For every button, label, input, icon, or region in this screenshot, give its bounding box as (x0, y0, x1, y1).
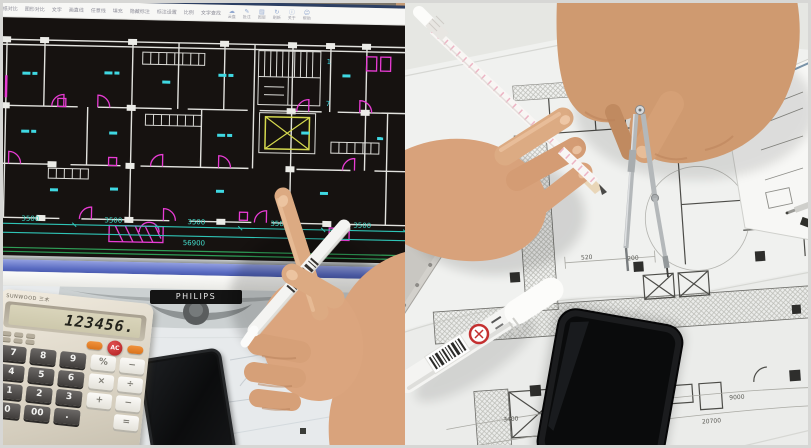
dimension-label: 3400 (503, 415, 519, 423)
calc-key-+: + (86, 392, 112, 410)
cad-toolbar-icon-label: 帮助 (303, 16, 311, 19)
calc-key-%: % (90, 354, 116, 372)
dimension-label: 200 (627, 255, 639, 263)
dimension-label: 3500 (104, 216, 122, 224)
calc-key-00: 00 (23, 405, 50, 423)
云盘-icon: ☁ (229, 9, 235, 12)
cad-menu-item: 隐藏标注 (130, 7, 150, 14)
图层-icon: ▤ (259, 10, 265, 13)
monitor: 图纸对比图形对比文字画直线任意线填充隐藏标注标注设置比例文字查找☁云盘✎批注▤图… (0, 0, 405, 294)
cad-floor-plan: 1 7 (0, 17, 405, 264)
calc-key-7: 7 (0, 345, 27, 363)
operator-keypad: %−×÷+−= (84, 354, 145, 431)
cad-toolbar-icon-label: 刷新 (273, 15, 281, 18)
cad-screen: 1 7 (0, 17, 405, 264)
calc-key-×: × (88, 373, 114, 391)
philips-logo: PHILIPS (150, 290, 242, 304)
dimension-label: 3500 (21, 215, 39, 223)
dimension-label: 20700 (702, 417, 722, 425)
calc-key-2: 2 (25, 386, 52, 404)
dimension-label: 9000 (729, 394, 745, 402)
calc-key-3: 3 (55, 389, 82, 407)
cad-menu-item: 图纸对比 (0, 5, 18, 12)
dimension-label: 3500 (270, 220, 288, 228)
calc-key-0: 0 (0, 401, 21, 419)
刷新-icon: ↻ (274, 10, 279, 13)
cad-toolbar-icon: ▤图层 (258, 10, 266, 18)
cad-menu-item: 填充 (113, 7, 123, 14)
orange-key (86, 341, 103, 351)
compass-lead (667, 268, 668, 277)
right-photo-panel: 520 200 3400 9000 20700 (405, 0, 811, 448)
calc-key-5: 5 (27, 367, 54, 385)
cad-menu-item: 图形对比 (25, 5, 45, 12)
calc-key-=: = (113, 414, 139, 432)
cad-menu-item: 比例 (184, 8, 194, 15)
cad-toolbar-icon-label: 图层 (258, 15, 266, 18)
calc-key-.: . (53, 408, 80, 426)
calc-key-÷: ÷ (117, 376, 143, 394)
cad-dimensions: 3500 3500 3500 3500 3500 56900 (0, 214, 405, 260)
calc-key-6: 6 (57, 370, 84, 388)
calc-key-−: − (119, 357, 145, 375)
cad-toolbar-icon: ⓘ关于 (288, 11, 296, 19)
calc-key-−: − (115, 395, 141, 413)
cad-stair-label: 7 (326, 100, 331, 108)
pencil-eraser (419, 12, 429, 22)
帮助-icon: ☺ (304, 11, 310, 14)
photo-collage: 图纸对比图形对比文字画直线任意线填充隐藏标注标注设置比例文字查找☁云盘✎批注▤图… (0, 0, 811, 448)
cad-menu-item: 文字 (52, 6, 62, 13)
calc-key-1: 1 (0, 383, 23, 401)
cad-toolbar-icon: ☺帮助 (303, 11, 311, 19)
dimension-label: 3500 (187, 218, 205, 226)
calc-key-4: 4 (0, 364, 25, 382)
ac-key: AC (107, 339, 123, 355)
smartphone-screen (143, 353, 231, 448)
cad-toolbar-icon-label: 关于 (288, 16, 296, 19)
calc-key-9: 9 (59, 351, 86, 369)
cad-menu-item: 画直线 (69, 6, 84, 13)
cad-toolbar-icon-label: 批注 (243, 15, 251, 18)
cad-toolbar-icon: ✎批注 (243, 10, 251, 18)
dimension-total-label: 56900 (183, 239, 205, 247)
批注-icon: ✎ (244, 10, 249, 13)
cad-walls (0, 39, 405, 226)
left-photo-panel: 图纸对比图形对比文字画直线任意线填充隐藏标注标注设置比例文字查找☁云盘✎批注▤图… (0, 0, 405, 448)
calculator: SUNWOOD 三木 123456. AC 789456123000. %−×÷… (0, 288, 154, 448)
cad-menu-item: 文字查找 (201, 9, 221, 16)
dimension-label: 520 (581, 254, 593, 262)
memory-keys (2, 331, 37, 344)
cad-stair-label: 1 (327, 58, 332, 66)
cad-toolbar-icon-label: 云盘 (228, 14, 236, 17)
smartphone (137, 347, 237, 448)
dimension-label: 3500 (353, 222, 371, 230)
cad-menu-item: 标注设置 (157, 8, 177, 15)
cad-toolbar-icon: ☁云盘 (228, 9, 236, 17)
cad-menu-item: 任意线 (91, 7, 106, 14)
calc-key-8: 8 (29, 348, 56, 366)
number-keypad: 789456123000. (0, 345, 87, 426)
cad-toolbar-icon: ↻刷新 (273, 10, 281, 18)
cad-stairwell (258, 51, 321, 106)
orange-key (127, 345, 144, 355)
关于-icon: ⓘ (289, 11, 295, 14)
